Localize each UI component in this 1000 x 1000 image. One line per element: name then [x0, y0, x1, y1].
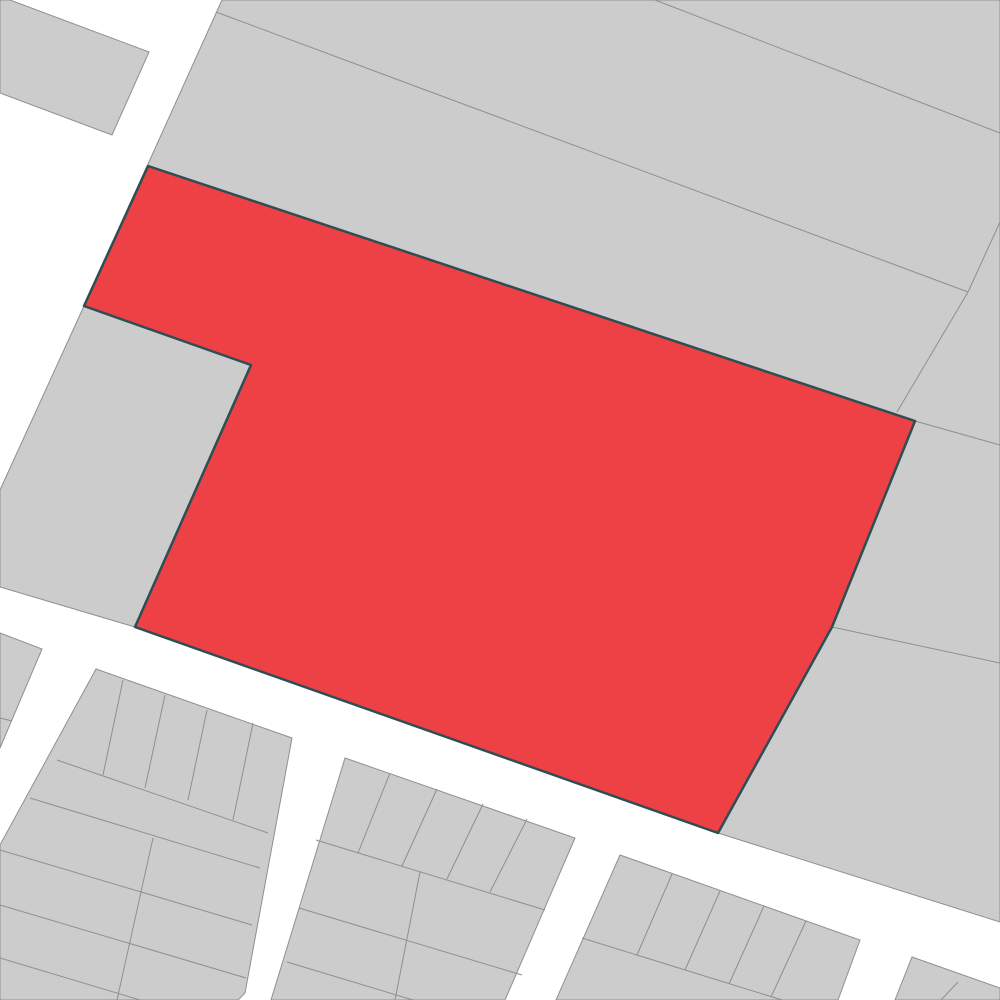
top-left-parcel[interactable] — [0, 0, 149, 135]
southwest-block[interactable] — [0, 669, 292, 1000]
south-center-block[interactable] — [271, 758, 575, 1000]
west-strip-parcel[interactable] — [0, 633, 42, 748]
parcel-map-svg — [0, 0, 1000, 1000]
southeast-block[interactable] — [556, 855, 860, 1000]
map-canvas — [0, 0, 1000, 1000]
